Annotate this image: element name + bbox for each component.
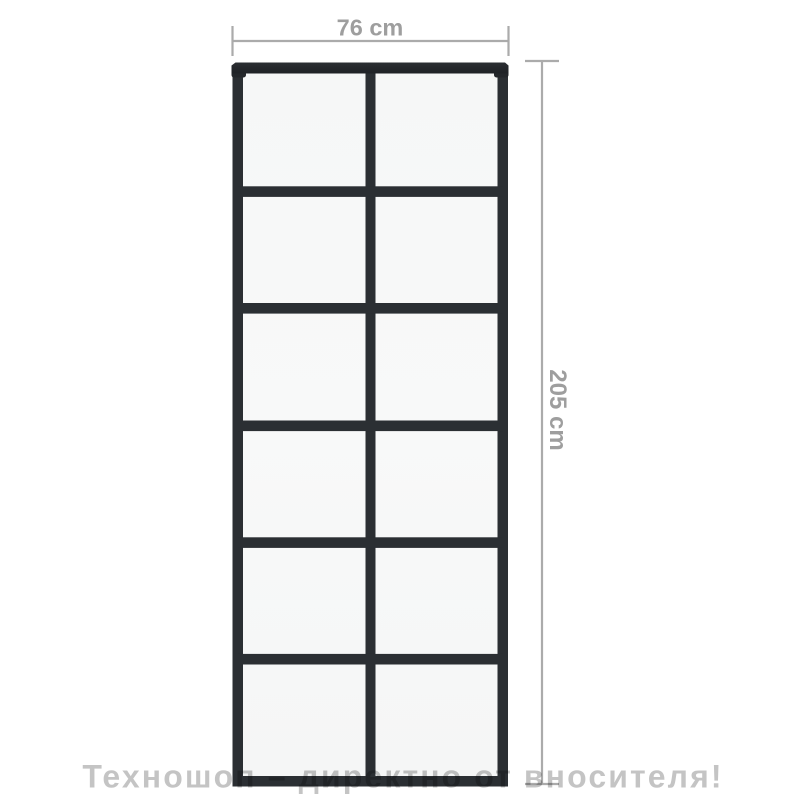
svg-text:76 cm: 76 cm bbox=[337, 15, 404, 41]
svg-text:Техношоп – директно от вносите: Техношоп – директно от вносителя! bbox=[82, 759, 723, 795]
svg-text:205 cm: 205 cm bbox=[544, 369, 571, 450]
